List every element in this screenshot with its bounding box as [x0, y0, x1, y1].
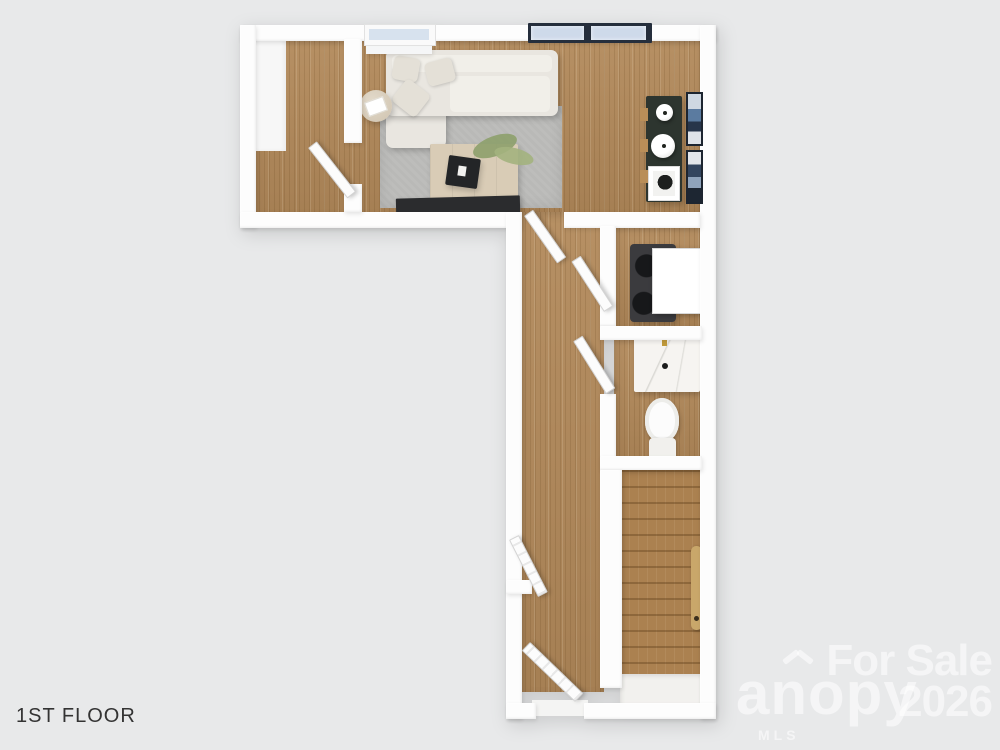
front-door-threshold — [532, 700, 588, 716]
watermark-mls-text: MLS — [758, 727, 800, 743]
wall — [564, 212, 700, 228]
wall — [344, 39, 362, 143]
handrail-bracket — [694, 616, 699, 621]
wall — [584, 703, 716, 719]
wall — [240, 212, 522, 228]
sliding-glass-door — [528, 23, 652, 43]
sink-drain — [662, 363, 668, 369]
wall — [600, 470, 622, 688]
wall — [506, 703, 536, 719]
floorplan-image: 1ST FLOOR For Sale 2026 anopy MLS — [0, 0, 1000, 750]
wall-art — [686, 92, 703, 146]
shelf-accent — [640, 139, 648, 152]
wall — [240, 25, 256, 228]
vase-large — [651, 134, 675, 158]
toilet-bowl — [645, 398, 679, 442]
shelf-accent — [640, 108, 648, 121]
shelf-accent — [640, 170, 648, 183]
window-glass — [369, 29, 429, 40]
window — [364, 24, 436, 46]
wall — [600, 456, 702, 470]
framed-art — [648, 166, 680, 201]
glass-pane — [531, 26, 584, 40]
vase-small — [656, 104, 673, 121]
wall — [600, 326, 702, 340]
floor-plan — [0, 0, 1000, 750]
glass-pane — [591, 26, 646, 40]
stair-landing — [620, 674, 702, 706]
wall-art — [686, 150, 703, 204]
tray-card — [457, 165, 466, 176]
sofa-seat-cushion — [450, 76, 550, 112]
dryer-top-unit — [652, 248, 704, 314]
entry-niche — [254, 39, 286, 151]
wall — [506, 580, 532, 594]
art-print — [653, 171, 675, 196]
wall — [506, 212, 522, 719]
staircase — [620, 470, 702, 688]
floor-label: 1ST FLOOR — [16, 705, 136, 728]
